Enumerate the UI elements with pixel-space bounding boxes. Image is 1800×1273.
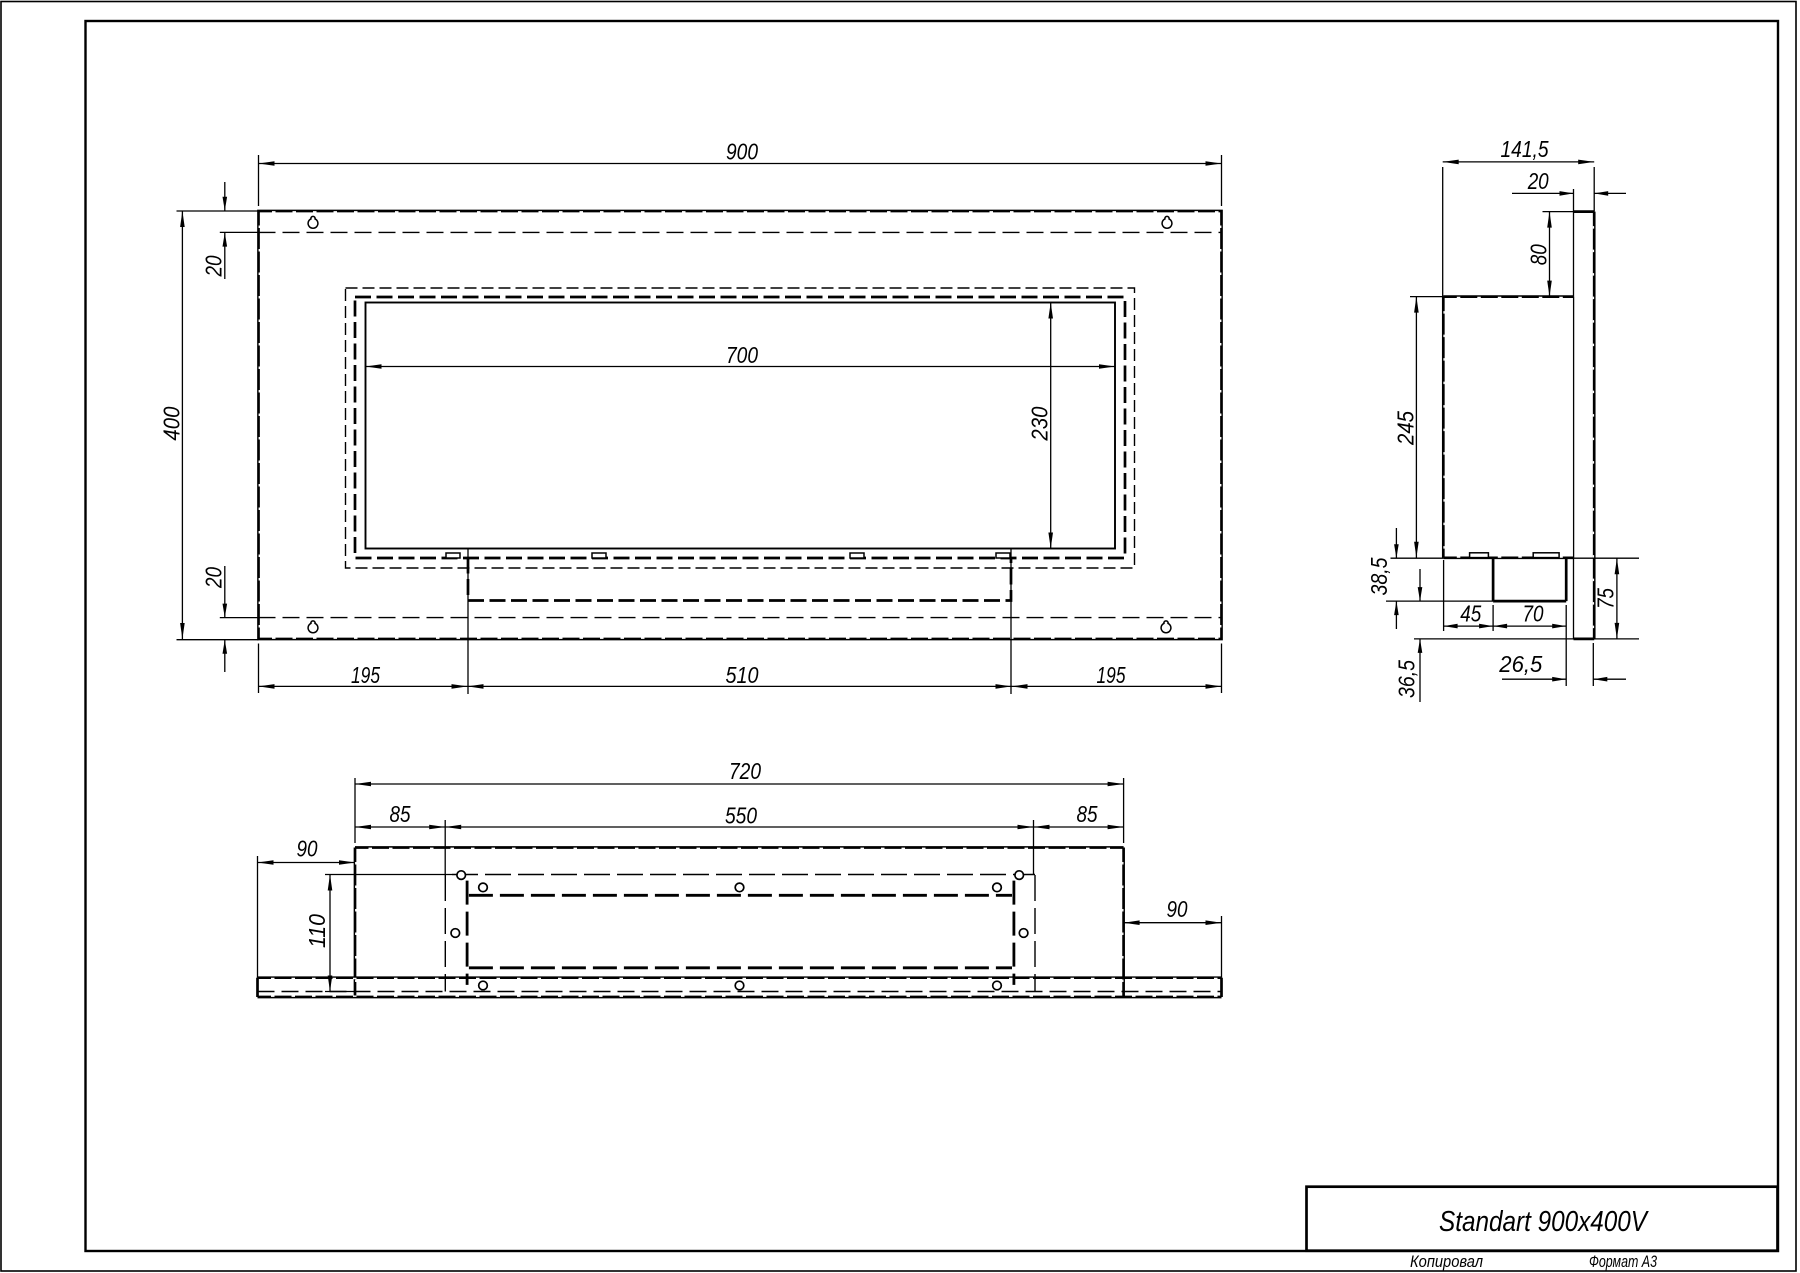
svg-text:720: 720 (729, 758, 761, 784)
svg-text:230: 230 (1027, 406, 1053, 441)
svg-text:245: 245 (1392, 411, 1418, 446)
svg-text:510: 510 (726, 662, 759, 688)
svg-text:26,5: 26,5 (1498, 651, 1542, 677)
svg-text:75: 75 (1592, 588, 1618, 609)
svg-text:195: 195 (1097, 662, 1126, 688)
svg-text:80: 80 (1526, 244, 1552, 265)
svg-text:20: 20 (1527, 168, 1549, 194)
svg-text:85: 85 (390, 801, 411, 827)
svg-text:20: 20 (201, 255, 227, 277)
svg-text:550: 550 (725, 803, 757, 829)
svg-text:110: 110 (304, 914, 330, 948)
svg-text:700: 700 (726, 342, 758, 368)
svg-text:45: 45 (1460, 600, 1481, 626)
svg-text:36,5: 36,5 (1394, 660, 1420, 698)
svg-text:Standart 900x400V: Standart 900x400V (1439, 1206, 1649, 1238)
svg-text:Формат А3: Формат А3 (1589, 1252, 1657, 1271)
svg-text:90: 90 (297, 836, 318, 862)
svg-text:85: 85 (1077, 801, 1098, 827)
svg-text:38,5: 38,5 (1366, 557, 1392, 595)
svg-text:20: 20 (201, 567, 227, 589)
svg-text:900: 900 (726, 139, 758, 165)
svg-text:195: 195 (351, 662, 380, 688)
svg-text:70: 70 (1523, 600, 1544, 626)
svg-text:400: 400 (159, 406, 185, 440)
svg-text:90: 90 (1167, 896, 1188, 922)
svg-text:Копировал: Копировал (1410, 1252, 1483, 1271)
svg-text:141,5: 141,5 (1501, 136, 1549, 162)
